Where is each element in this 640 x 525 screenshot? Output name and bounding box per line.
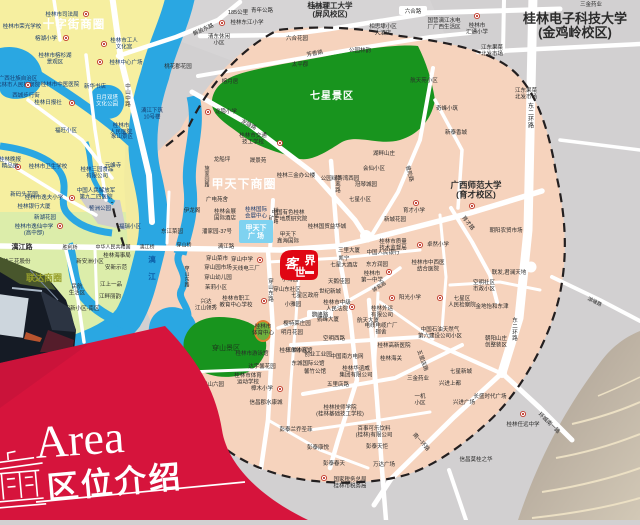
svg-text:广电苑舍: 广电苑舍: [206, 195, 229, 203]
svg-text:新泰香城: 新泰香城: [445, 128, 468, 136]
svg-text:彭泰春天: 彭泰春天: [323, 459, 346, 467]
svg-text:新码头花园: 新码头花园: [10, 190, 38, 198]
svg-text:七星区政府: 七星区政府: [291, 291, 319, 299]
svg-text:桂林市卫生学校: 桂林市卫生学校: [29, 162, 68, 170]
svg-text:樱特莱庄园: 樱特莱庄园: [283, 319, 311, 327]
svg-text:安新示范: 安新示范: [105, 263, 128, 271]
svg-text:西城步行街: 西城步行街: [12, 91, 40, 99]
svg-text:漓江桥: 漓江桥: [139, 244, 154, 251]
svg-text:龙隐小学: 龙隐小学: [215, 107, 238, 115]
svg-text:漓江下筑10号楼: 漓江下筑10号楼: [141, 106, 164, 121]
svg-text:公园林韵: 公园林韵: [349, 46, 372, 54]
svg-text:明月花园: 明月花园: [281, 328, 304, 336]
svg-text:桂林市中级人民法院: 桂林市中级人民法院: [323, 298, 351, 313]
svg-text:桂林市体育馆: 桂林市体育馆: [279, 346, 313, 354]
svg-text:桂林市质量技术监督局: 桂林市质量技术监督局: [379, 237, 407, 252]
svg-text:小雅园: 小雅园: [285, 300, 302, 308]
svg-text:朝阳农贸市场: 朝阳农贸市场: [489, 226, 523, 234]
svg-text:航天大厦: 航天大厦: [357, 316, 380, 324]
svg-text:空明西路: 空明西路: [323, 334, 346, 342]
svg-text:五里店路: 五里店路: [327, 380, 350, 388]
svg-text:桂林市人民医院: 桂林市人民医院: [110, 121, 133, 136]
svg-text:桂林银行大厦: 桂林银行大厦: [17, 202, 51, 210]
svg-text:甲天下商圈: 甲天下商圈: [211, 176, 276, 191]
svg-text:穿山园市场: 穿山园市场: [204, 263, 232, 271]
svg-text:桂林市司法局: 桂林市司法局: [45, 10, 78, 18]
svg-text:长盛时代广场: 长盛时代广场: [473, 392, 507, 400]
svg-text:江畔丽韵: 江畔丽韵: [99, 292, 122, 300]
svg-text:穿山东社区: 穿山东社区: [273, 285, 301, 293]
svg-text:育才小学: 育才小学: [403, 206, 426, 214]
svg-text:桂林市荣光学校: 桂林市荣光学校: [3, 22, 42, 30]
svg-text:桂林日报社: 桂林日报社: [34, 98, 62, 106]
svg-text:桂林国贸益华城: 桂林国贸益华城: [308, 222, 347, 230]
svg-text:桂林市体育中心: 桂林市体育中心: [252, 322, 275, 337]
svg-text:桂林海关: 桂林海关: [380, 354, 403, 362]
svg-text:界: 界: [305, 254, 316, 267]
svg-text:福旺小区: 福旺小区: [55, 126, 78, 134]
svg-text:奇峰小筑: 奇峰小筑: [436, 104, 459, 112]
svg-text:桂林市第一中学: 桂林市第一中学: [361, 269, 384, 284]
svg-text:东江菜园: 东江菜园: [161, 227, 184, 235]
svg-text:穿山菜市: 穿山菜市: [206, 254, 229, 262]
svg-text:十字街商圈: 十字街商圈: [43, 17, 106, 31]
svg-text:广西壮族自治区桂林市人民检察院: 广西壮族自治区桂林市人民检察院: [0, 74, 40, 89]
svg-text:三金药业: 三金药业: [580, 0, 603, 8]
svg-text:中国人民解放军第九二四医院: 中国人民解放军第九二四医院: [77, 186, 116, 201]
svg-text:太平郡: 太平郡: [292, 60, 309, 68]
svg-text:中国南方电网: 中国南方电网: [330, 352, 364, 360]
svg-text:信昌郡水康城: 信昌郡水康城: [249, 398, 283, 406]
svg-text:七星小区: 七星小区: [349, 195, 372, 203]
svg-text:航天苑小区: 航天苑小区: [410, 76, 438, 84]
svg-text:世纪新城: 世纪新城: [319, 287, 342, 295]
svg-text:桂林三金办公楼: 桂林三金办公楼: [277, 171, 316, 179]
svg-text:Area: Area: [33, 411, 126, 468]
svg-text:桂林中心广场: 桂林中心广场: [109, 58, 143, 66]
svg-text:漓江路: 漓江路: [218, 242, 235, 250]
svg-text:江东果菜北发市场: 江东果菜北发市场: [481, 43, 504, 58]
svg-text:桂林市中医医院: 桂林市中医医院: [41, 80, 80, 88]
svg-text:信昌莫桂之华: 信昌莫桂之华: [459, 455, 493, 463]
svg-text:东二环路: 东二环路: [528, 102, 534, 130]
svg-text:公园绿涛湾西园: 公园绿涛湾西园: [321, 174, 360, 182]
svg-text:天线电三厂: 天线电三厂: [232, 264, 260, 272]
svg-text:龙船坪: 龙船坪: [214, 155, 231, 163]
svg-text:穿山东路: 穿山东路: [184, 265, 189, 289]
svg-text:江东果菜北发市场: 江东果菜北发市场: [515, 86, 538, 101]
svg-text:青年公路: 青年公路: [251, 6, 274, 14]
svg-text:三金药业: 三金药业: [407, 374, 430, 382]
svg-text:馨竹公馆: 馨竹公馆: [304, 367, 327, 375]
svg-text:福瑞小区: 福瑞小区: [119, 222, 142, 230]
svg-text:国家税务总局桂林市税务局: 国家税务总局桂林市税务局: [333, 475, 366, 490]
svg-text:江上一品: 江上一品: [100, 280, 123, 288]
svg-text:潘家园-37号: 潘家园-37号: [202, 227, 232, 235]
svg-text:甲天下鑫海国际: 甲天下鑫海国际: [277, 231, 300, 245]
svg-text:中国有色桂林矿产地质研究院: 中国有色桂林矿产地质研究院: [269, 208, 308, 223]
svg-text:达宇馨花园: 达宇馨花园: [248, 362, 276, 370]
svg-text:百事可乐饮料(桂林)有限公司: 百事可乐饮料(桂林)有限公司: [356, 424, 393, 439]
svg-text:六合路: 六合路: [405, 7, 422, 15]
svg-text:茉莉小区: 茉莉小区: [205, 283, 228, 291]
svg-text:桂林会展国际酒店: 桂林会展国际酒店: [214, 207, 237, 222]
svg-text:桂林市汇通小学: 桂林市汇通小学: [466, 21, 489, 36]
svg-text:中山中路: 中山中路: [125, 82, 131, 108]
svg-text:晟景苑: 晟景苑: [250, 156, 267, 164]
svg-text:桂林市体育运动学校: 桂林市体育运动学校: [234, 371, 262, 386]
svg-text:联发,君澜天地: 联发,君澜天地: [492, 268, 527, 276]
svg-text:新华书店: 新华书店: [84, 82, 107, 90]
svg-text:桂林电子科技大学(金鸡岭校区): 桂林电子科技大学(金鸡岭校区): [522, 11, 627, 40]
svg-text:桃花郡花园: 桃花郡花园: [164, 62, 192, 70]
svg-text:金地怡和东津: 金地怡和东津: [475, 302, 509, 310]
svg-text:桂林外运有限公司: 桂林外运有限公司: [371, 304, 394, 319]
svg-text:訾洲公园: 訾洲公园: [89, 205, 112, 212]
svg-text:185公里: 185公里: [228, 9, 249, 16]
svg-text:阳光小学: 阳光小学: [399, 293, 422, 301]
svg-text:穿山幼儿园: 穿山幼儿园: [204, 273, 232, 281]
svg-text:桂林市游泳馆: 桂林市游泳馆: [235, 349, 269, 357]
svg-text:鹦峰大厦: 鹦峰大厦: [317, 315, 340, 323]
svg-text:榕湖小学: 榕湖小学: [35, 34, 58, 42]
svg-text:漓江路: 漓江路: [12, 242, 34, 251]
svg-text:东方润园: 东方润园: [366, 260, 389, 268]
svg-text:新湖花园: 新湖花园: [34, 213, 57, 221]
svg-text:榕月居: 榕月居: [222, 77, 239, 85]
svg-text:七星新城: 七星新城: [450, 367, 473, 375]
svg-text:七星景区: 七星景区: [310, 89, 354, 102]
svg-text:联达商圈: 联达商圈: [26, 272, 62, 283]
svg-text:东城国际公馆: 东城国际公馆: [291, 359, 325, 367]
svg-text:桂林任远中学: 桂林任远中学: [506, 420, 540, 428]
svg-text:桂林华谊威集团有限公司: 桂林华谊威集团有限公司: [339, 364, 372, 379]
svg-text:天鹅佳园: 天鹅佳园: [328, 277, 351, 285]
svg-text:三里大厦: 三里大厦: [338, 246, 361, 254]
svg-text:新安洲小区: 新安洲小区: [76, 257, 104, 265]
svg-text:冠琴城园: 冠琴城园: [355, 181, 378, 188]
svg-text:彭泰康悦: 彭泰康悦: [307, 443, 330, 451]
svg-text:伊龙阁: 伊龙阁: [184, 206, 201, 214]
svg-text:桂林高新医院: 桂林高新医院: [377, 341, 411, 349]
svg-text:桂林市职工教育中心学校: 桂林市职工教育中心学校: [219, 294, 253, 309]
svg-text:彭泰兰乔圣菲: 彭泰兰乔圣菲: [279, 425, 313, 433]
svg-text:桂林国际会展中心: 桂林国际会展中心: [245, 205, 268, 220]
svg-text:穿山桥: 穿山桥: [176, 242, 191, 249]
svg-text:胜利桥: 胜利桥: [62, 244, 77, 251]
svg-text:桂林东江小学: 桂林东江小学: [230, 18, 264, 26]
svg-text:广西师范大学(育才校区): 广西师范大学(育才校区): [450, 180, 502, 200]
svg-text:兴进广场: 兴进广场: [453, 398, 476, 406]
svg-text:一机小区: 一机小区: [414, 392, 426, 407]
svg-text:兴进上都: 兴进上都: [439, 379, 462, 387]
svg-text:樟木小学: 樟木小学: [251, 384, 274, 392]
svg-text:会仙小区: 会仙小区: [363, 164, 386, 172]
svg-text:湖畔山庄: 湖畔山庄: [373, 149, 396, 157]
svg-text:穿山中学: 穿山中学: [231, 255, 254, 263]
svg-text:中国石油天然气第六建设公司小区: 中国石油天然气第六建设公司小区: [418, 325, 463, 340]
svg-text:朝阳山庄创整装区: 朝阳山庄创整装区: [485, 334, 508, 349]
svg-text:桂林市交通技工学校: 桂林市交通技工学校: [239, 131, 267, 146]
svg-text:世: 世: [295, 265, 306, 279]
svg-text:桂林理工大学(屏风校区): 桂林理工大学(屏风校区): [307, 0, 353, 19]
svg-text:桂林海事局: 桂林海事局: [103, 251, 131, 259]
svg-text:空明社区市政小区: 空明社区市政小区: [473, 278, 496, 293]
svg-text:新城花园: 新城花园: [384, 215, 407, 223]
svg-text:日月双塔文化公园: 日月双塔文化公园: [96, 93, 119, 108]
svg-text:卓然小学: 卓然小学: [427, 240, 450, 248]
svg-text:万达广场: 万达广场: [373, 460, 396, 468]
svg-text:东二环路: 东二环路: [512, 316, 518, 342]
svg-text:国营漓江水电厂广西生活区: 国营漓江水电厂广西生活区: [427, 16, 461, 31]
svg-text:六合花园: 六合花园: [286, 34, 309, 42]
svg-text:中华人民共和国: 中华人民共和国: [95, 244, 130, 251]
svg-text:施家园路: 施家园路: [204, 165, 209, 189]
svg-text:彭泰天怇: 彭泰天怇: [366, 442, 389, 450]
